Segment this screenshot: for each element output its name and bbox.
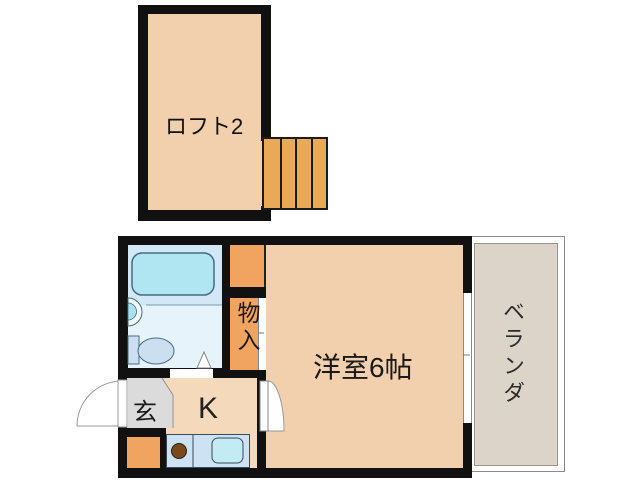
entrance-doorway: [118, 380, 128, 427]
entrance-label: 玄: [133, 392, 157, 427]
western-room-label: 洋室6帖: [313, 346, 413, 386]
bath-zone: [128, 245, 222, 305]
stair-tread-line: [295, 139, 297, 208]
wall-segment: [118, 428, 166, 437]
stair-tread-line: [280, 139, 282, 208]
loft-label: ロフト2: [165, 109, 243, 141]
veranda-window: [463, 293, 472, 423]
stairs: [262, 137, 328, 210]
floorplan-canvas: ロフト2 洋室6帖 K 玄 物入 ベランダ: [0, 0, 640, 480]
kitchen-label: K: [198, 392, 218, 426]
veranda-label: ベランダ: [499, 300, 523, 408]
kitchen-counter: [166, 434, 250, 468]
bathroom-doorway: [170, 369, 213, 378]
stair-tread-line: [311, 139, 313, 208]
storage-label: 物入: [232, 301, 258, 355]
shoe-cabinet: [127, 437, 160, 468]
closet: [230, 245, 266, 287]
